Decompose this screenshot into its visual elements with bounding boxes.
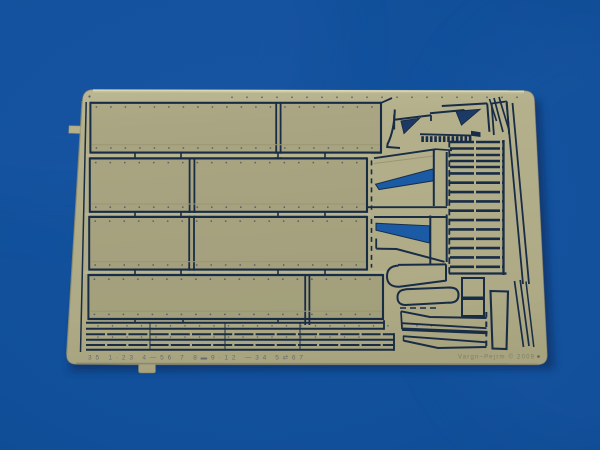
svg-text:Vargn–Pejrm © 2009: Vargn–Pejrm © 2009 bbox=[458, 354, 535, 361]
